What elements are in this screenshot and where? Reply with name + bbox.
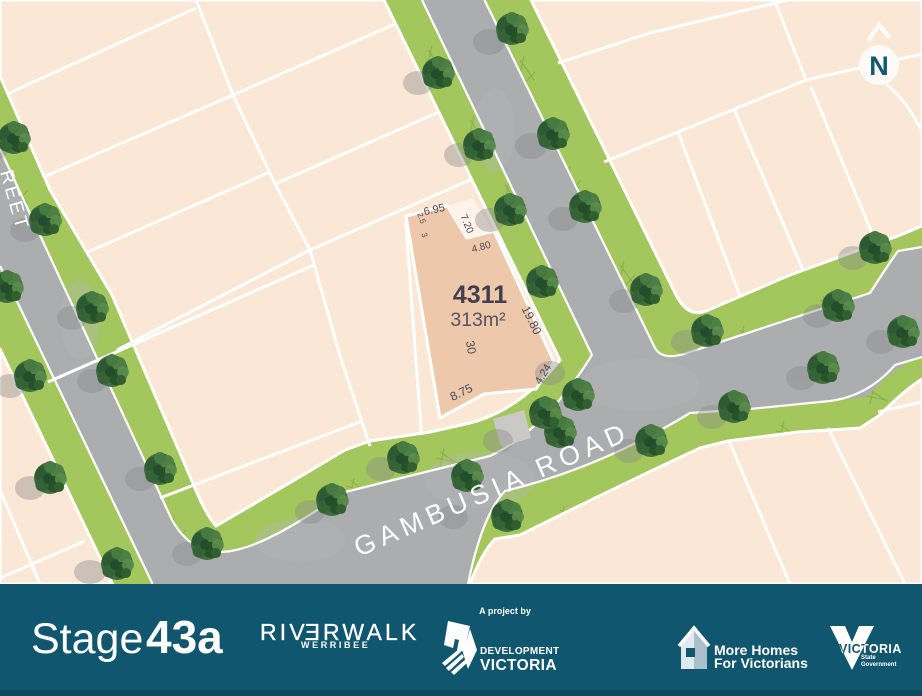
svg-text:Government: Government: [861, 662, 896, 668]
svg-text:313m²: 313m²: [450, 309, 506, 331]
svg-text:State: State: [861, 655, 876, 661]
svg-text:4311: 4311: [453, 281, 507, 309]
svg-text:Stage: Stage: [31, 615, 143, 663]
svg-text:For Victorians: For Victorians: [714, 655, 808, 671]
svg-text:DEVELOPMENT: DEVELOPMENT: [480, 646, 559, 657]
svg-text:A project by: A project by: [479, 606, 531, 616]
svg-text:WERRIBEE: WERRIBEE: [301, 640, 370, 650]
svg-text:VICTORIA: VICTORIA: [480, 657, 557, 674]
svg-text:30: 30: [463, 340, 479, 356]
svg-text:43a: 43a: [146, 611, 223, 663]
svg-text:N: N: [869, 51, 889, 81]
